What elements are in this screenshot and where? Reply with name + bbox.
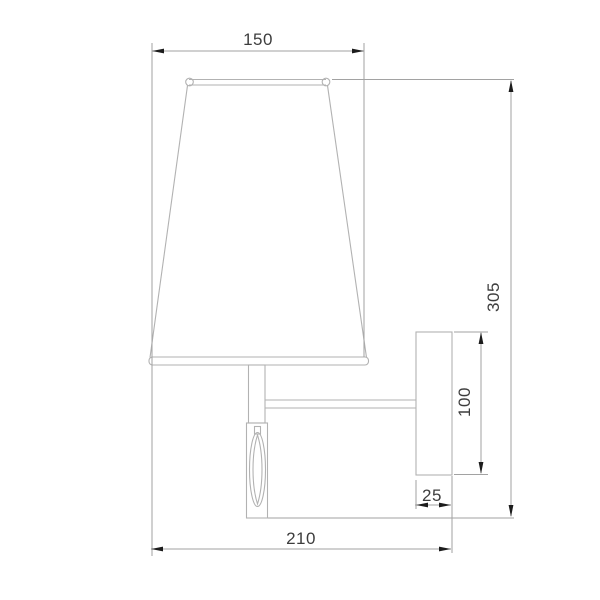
shade-right-side <box>328 86 367 358</box>
arrowhead-left <box>151 547 163 552</box>
shade-bottom-rim <box>149 357 369 365</box>
label-backplate-depth: 25 <box>422 486 442 505</box>
crystal-outer <box>250 433 266 507</box>
dim-backplate-height: 100 <box>454 332 488 475</box>
label-overall-projection: 210 <box>286 529 316 548</box>
dim-backplate-depth: 25 <box>415 480 451 509</box>
arrowhead-top <box>479 332 484 344</box>
label-backplate-height: 100 <box>455 387 474 417</box>
dim-overall-projection: 210 <box>151 476 452 553</box>
arrowhead-top <box>509 80 514 92</box>
arrowhead-right <box>439 547 451 552</box>
arrowhead-bottom <box>509 505 514 517</box>
label-shade-width: 150 <box>243 30 273 49</box>
shade-left-side <box>150 86 188 358</box>
lamp-stem <box>249 365 266 423</box>
wall-sconce-drawing: 150 305 100 25 <box>0 0 600 600</box>
crystal-inner-facet <box>253 435 262 504</box>
technical-drawing-canvas: 150 305 100 25 <box>0 0 600 600</box>
wall-backplate <box>416 332 452 475</box>
label-overall-height: 305 <box>484 282 503 312</box>
arrowhead-right <box>352 49 364 54</box>
arrowhead-left <box>152 49 164 54</box>
arrowhead-bottom <box>479 462 484 474</box>
lamp-outline <box>149 78 452 518</box>
dim-overall-height: 305 <box>268 80 514 519</box>
